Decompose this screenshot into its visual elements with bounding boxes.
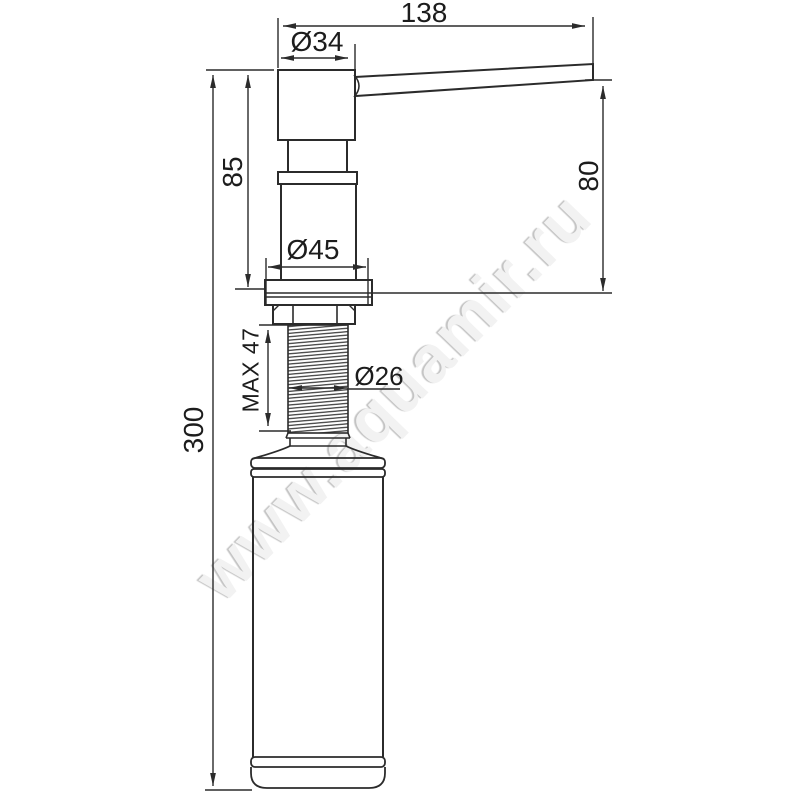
dim-max47-lines: [259, 325, 291, 431]
threaded-shaft: [286, 325, 350, 438]
dimension-label-spout-length: 138: [401, 0, 448, 27]
technical-drawing-canvas: www.aquamir.ru: [0, 0, 800, 800]
dimension-label-spout-diameter: Ø34: [291, 28, 344, 56]
dimension-lines: [205, 17, 612, 790]
dispenser-drawing: [0, 0, 800, 800]
dimension-label-thread-length: MAX 47: [240, 328, 263, 413]
bottle-body-outline: [253, 477, 383, 757]
mounting-nut-outline: [273, 305, 355, 324]
collar-ring-outline: [278, 172, 357, 184]
mounting-flange-outline: [265, 280, 372, 305]
dimension-label-total-height: 300: [180, 407, 208, 454]
dimension-label-head-height: 85: [219, 156, 247, 187]
bottle-bottom-outline: [251, 757, 385, 788]
dimension-label-thread-diameter: Ø26: [354, 363, 403, 389]
pump-head-outline: [278, 70, 355, 140]
dimension-label-body-diameter: Ø45: [287, 236, 340, 264]
bottle-shoulder: [251, 446, 385, 477]
dispenser-outline: [251, 64, 612, 788]
spout-outline: [355, 64, 593, 96]
dimension-label-spout-height: 80: [575, 160, 603, 191]
pump-body-outline: [281, 184, 356, 280]
neck-outline: [288, 140, 347, 172]
bottle-neck-ring: [290, 438, 346, 446]
